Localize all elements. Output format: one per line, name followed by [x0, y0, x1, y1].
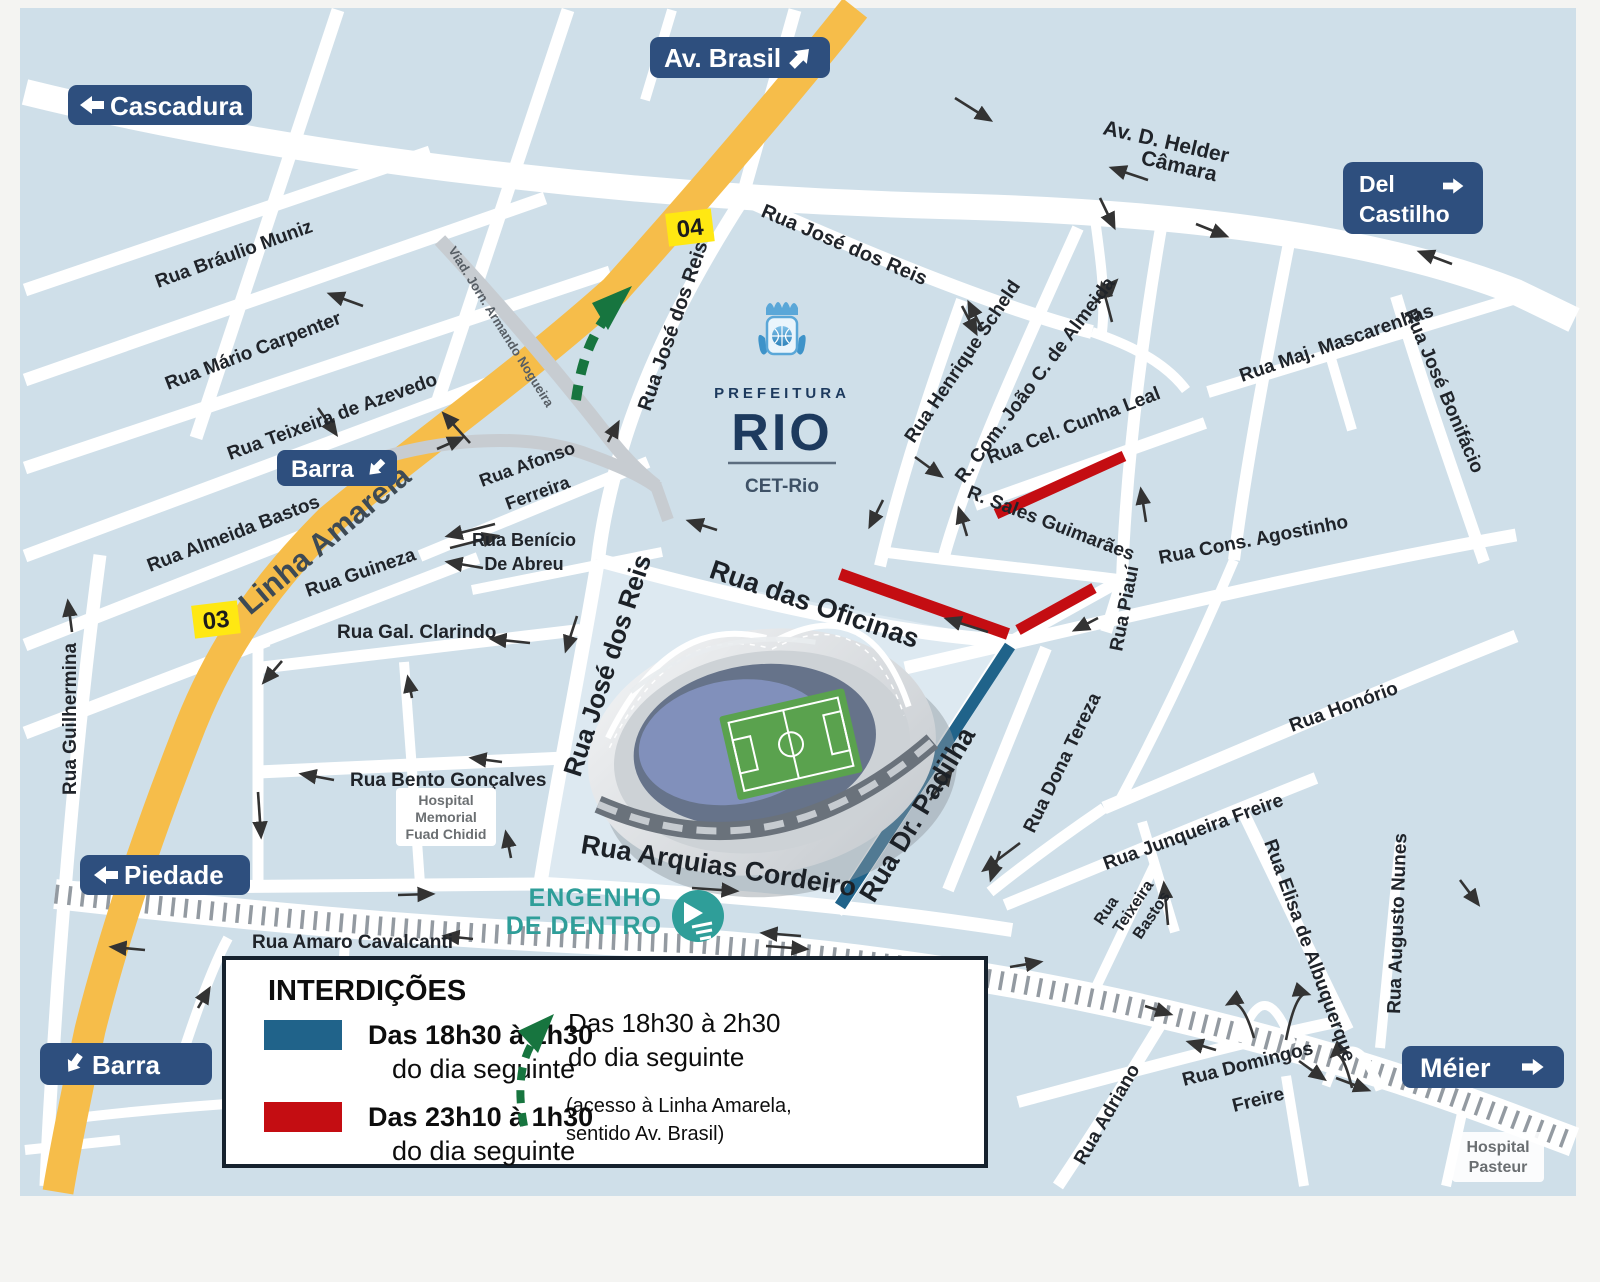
svg-text:Pasteur: Pasteur: [1469, 1159, 1528, 1176]
svg-text:Méier: Méier: [1420, 1053, 1491, 1083]
street-label-guilhermina: Rua Guilhermina: [60, 643, 81, 795]
street-label-gal-clarindo: Rua Gal. Clarindo: [337, 622, 496, 643]
street-label-amaro: Rua Amaro Cavalcanti: [252, 932, 453, 953]
legend-green-note-1: (acesso à Linha Amarela,: [566, 1095, 792, 1117]
legend-blue-time: Das 18h30 à 1h30: [368, 1020, 593, 1050]
logo-dept: CET-Rio: [745, 476, 819, 497]
street-label-benicio-2: De Abreu: [484, 554, 563, 574]
logo-city: RIO: [731, 404, 832, 462]
legend-red-swatch: [264, 1102, 342, 1132]
station-label-1: ENGENHO: [529, 884, 662, 912]
traffic-map-page: Rua Bráulio Muniz Rua Mário Carpenter Ru…: [0, 0, 1600, 1282]
legend-green-suffix: do dia seguinte: [568, 1042, 744, 1072]
svg-text:Cascadura: Cascadura: [110, 91, 243, 121]
station-logo-icon: [672, 890, 724, 942]
legend-green-time: Das 18h30 à 2h30: [568, 1008, 781, 1038]
logo-org: PREFEITURA: [714, 385, 850, 402]
legend-green-note-2: sentido Av. Brasil): [566, 1123, 724, 1145]
svg-text:03: 03: [201, 605, 231, 635]
hospital-pasteur: Hospital Pasteur: [1452, 1132, 1544, 1182]
station-engenho-de-dentro: ENGENHO DE DENTRO: [506, 884, 724, 942]
legend: INTERDIÇÕES Das 18h30 à 1h30 do dia segu…: [224, 958, 986, 1166]
badge-exit-03: 03: [191, 600, 241, 638]
legend-red-suffix: do dia seguinte: [392, 1136, 575, 1166]
svg-text:Barra: Barra: [92, 1050, 160, 1080]
legend-blue-swatch: [264, 1020, 342, 1050]
legend-title: INTERDIÇÕES: [268, 973, 466, 1007]
hospital-fuad: Hospital Memorial Fuad Chidid: [396, 788, 496, 846]
svg-text:Fuad Chidid: Fuad Chidid: [406, 826, 487, 842]
svg-text:Castilho: Castilho: [1359, 201, 1450, 227]
legend-blue-suffix: do dia seguinte: [392, 1054, 575, 1084]
svg-text:Memorial: Memorial: [415, 809, 476, 825]
svg-text:Hospital: Hospital: [1466, 1139, 1529, 1156]
sign-del-castilho: Del Castilho: [1343, 162, 1483, 234]
street-label-benicio-1: Rua Benício: [472, 530, 576, 550]
svg-text:04: 04: [675, 213, 705, 243]
traffic-map: Rua Bráulio Muniz Rua Mário Carpenter Ru…: [0, 0, 1600, 1282]
svg-text:Av. Brasil: Av. Brasil: [664, 43, 781, 73]
sign-cascadura: Cascadura: [68, 85, 252, 125]
sign-meier: Méier: [1402, 1046, 1564, 1088]
legend-red-time: Das 23h10 à 1h30: [368, 1102, 593, 1132]
sign-piedade: Piedade: [80, 855, 250, 895]
badge-exit-04: 04: [665, 208, 715, 246]
svg-text:Del: Del: [1359, 171, 1395, 197]
sign-barra-mid: Barra: [277, 450, 397, 486]
svg-text:Piedade: Piedade: [124, 860, 224, 890]
sign-av-brasil: Av. Brasil: [650, 37, 830, 78]
station-label-2: DE DENTRO: [506, 912, 662, 940]
svg-text:Barra: Barra: [291, 456, 354, 483]
street-label-bento: Rua Bento Gonçalves: [350, 770, 546, 791]
svg-text:Hospital: Hospital: [418, 792, 473, 808]
sign-barra-bottom: Barra: [40, 1043, 212, 1085]
